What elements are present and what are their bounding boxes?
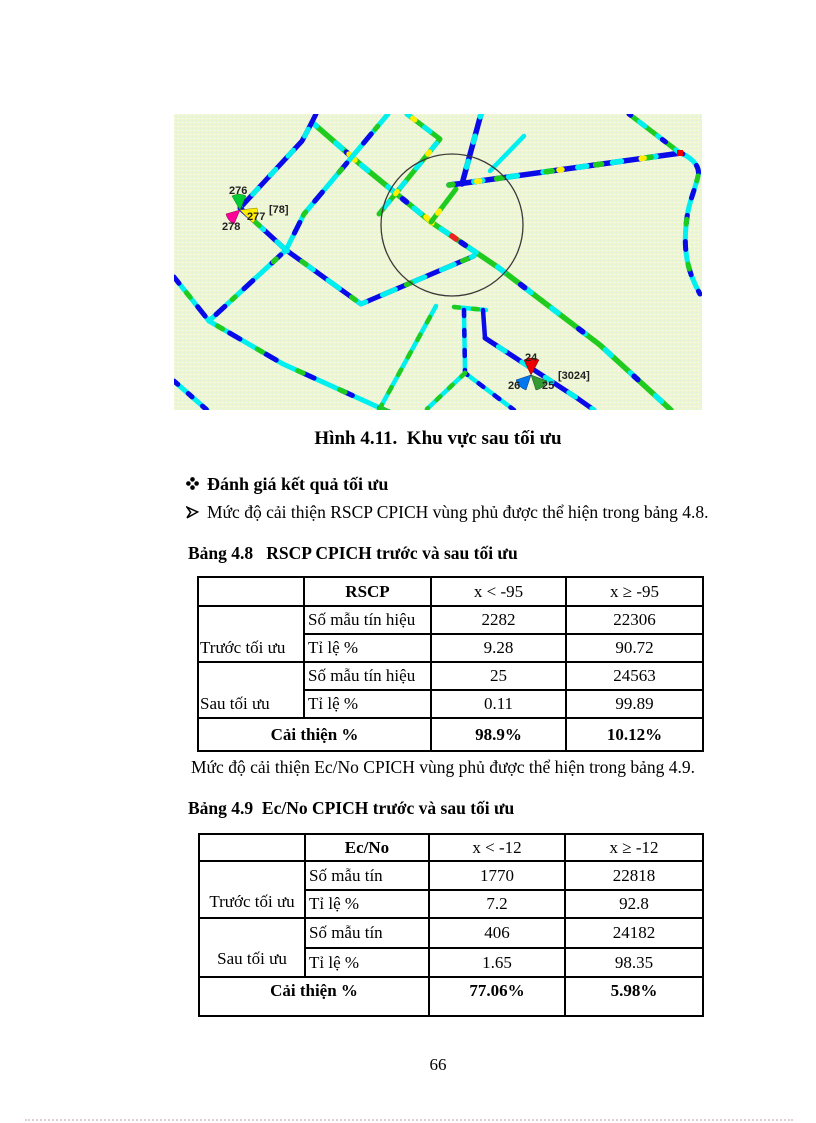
svg-text:277: 277 [247, 211, 265, 223]
svg-text:26: 26 [508, 380, 520, 392]
svg-text:[3024]: [3024] [558, 370, 590, 382]
svg-text:24: 24 [525, 352, 538, 364]
svg-text:[78]: [78] [269, 204, 289, 216]
svg-text:276: 276 [229, 185, 247, 197]
svg-text:278: 278 [222, 221, 240, 233]
svg-text:25: 25 [542, 380, 554, 392]
